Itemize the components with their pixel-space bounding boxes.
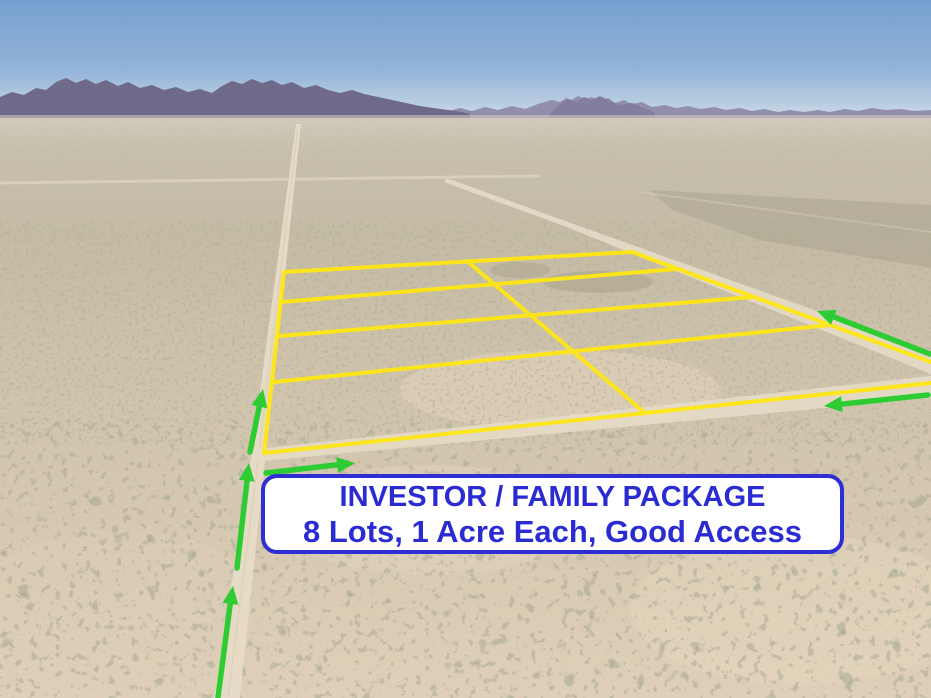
scene-graphics xyxy=(0,0,931,698)
banner-subtitle: 8 Lots, 1 Acre Each, Good Access xyxy=(303,514,802,549)
aerial-listing-photo: INVESTOR / FAMILY PACKAGE 8 Lots, 1 Acre… xyxy=(0,0,931,698)
info-banner: INVESTOR / FAMILY PACKAGE 8 Lots, 1 Acre… xyxy=(261,474,844,554)
banner-title: INVESTOR / FAMILY PACKAGE xyxy=(340,480,766,514)
